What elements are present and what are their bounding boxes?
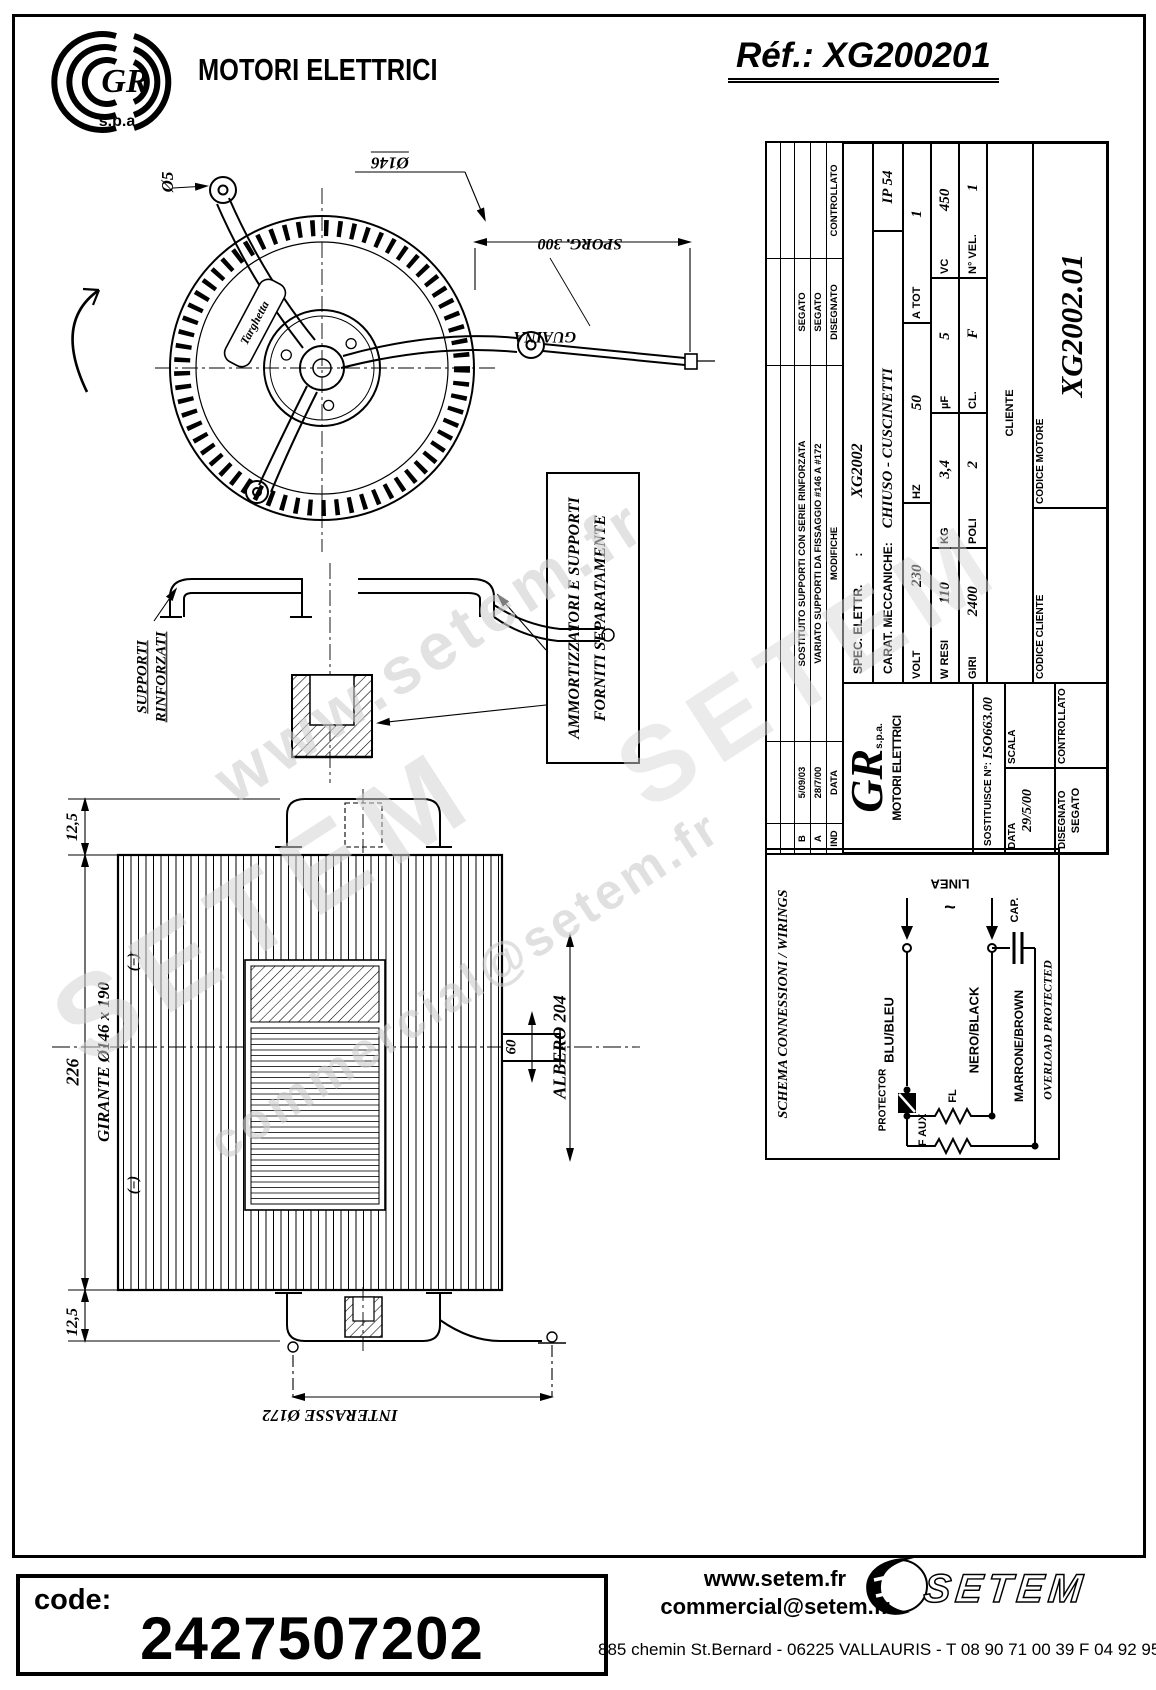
rev-cell	[767, 365, 781, 741]
rev-hdr-controllato: CONTROLLATO	[827, 143, 843, 258]
vc-value: 450	[937, 144, 954, 256]
rev-disegnato: SEGATO	[811, 258, 827, 365]
supporti-label-line2: RINFORZATI	[152, 632, 171, 723]
motor-core	[245, 960, 385, 1210]
supporti-label-line1: SUPPORTI	[133, 632, 152, 723]
codice-motore-label: CODICE MOTORE	[1034, 144, 1048, 507]
rev-hdr-modifiche: MODIFICHE	[827, 365, 843, 741]
title-block: B 5/09/03 SOSTITUITO SUPPORTI CON SERIE …	[765, 145, 1105, 855]
code-box: code: 2427507202	[16, 1574, 608, 1676]
kg-label: KG	[938, 525, 953, 548]
gr-block-spa: s.p.a.	[874, 723, 885, 749]
sostituisce-value: ISO663.00	[981, 697, 997, 759]
giri-label: GIRI	[966, 653, 981, 682]
note-line2: FORNITI SEPARATAMENTE	[588, 474, 614, 762]
hz-value: 50	[909, 324, 926, 481]
dim-dia146-label: Ø146	[371, 152, 409, 173]
blu-wire-label: BLU/BLEU	[882, 997, 897, 1063]
rev-controllato	[811, 143, 827, 258]
rubber-bushing-section	[292, 675, 372, 757]
sostituisce-cell: SOSTITUISCE N°: ISO663.00	[973, 683, 1005, 853]
hz-cell: HZ 50	[903, 323, 931, 503]
dim-eq-bottom: (=)	[126, 1176, 143, 1195]
controllato-cell: CONTROLLATO	[1055, 683, 1107, 768]
atot-value: 1	[909, 144, 926, 284]
rev-date: 5/09/03	[795, 741, 811, 823]
rev-modifiche: SOSTITUITO SUPPORTI CON SERIE RINFORZATA	[795, 365, 811, 741]
revision-row-a: A 28/7/00 VARIATO SUPPORTI DA FISSAGGIO …	[811, 143, 827, 853]
linea-label: LINEA	[931, 877, 970, 892]
ip-value: IP 54	[880, 144, 897, 230]
giri-cell: GIRI 2400	[959, 548, 987, 683]
volt-value: 230	[909, 504, 926, 647]
supporti-rinforzati-label: SUPPORTI RINFORZATI	[133, 632, 171, 723]
rev-cell	[767, 741, 781, 823]
kg-value: 3,4	[937, 414, 954, 525]
uf-cell: µF 5	[931, 278, 959, 413]
volt-label: VOLT	[910, 647, 925, 682]
rev-date: 28/7/00	[811, 741, 827, 823]
spec-elettr-row: SPEC. ELETTR. : XG2002	[843, 143, 873, 683]
carat-value: CHIUSO - CUSCINETTI	[880, 368, 897, 528]
dim-girante: GIRANTE Ø146 x 190	[94, 982, 114, 1142]
carat-row: CARAT. MECCANICHE: CHIUSO - CUSCINETTI	[873, 231, 903, 683]
hz-label: HZ	[910, 481, 925, 502]
nvel-cell: N° VEL. 1	[959, 143, 987, 278]
rev-cell	[767, 143, 781, 258]
wresi-value: 110	[937, 549, 954, 637]
codice-cliente-cell: CODICE CLIENTE	[1033, 508, 1107, 683]
uf-value: 5	[937, 279, 954, 393]
disegnato-label: DISEGNATO	[1056, 769, 1070, 852]
revision-row-empty1	[767, 143, 781, 853]
volt-cell: VOLT 230	[903, 503, 931, 683]
dim-interasse: INTERASSE Ø172	[262, 1405, 398, 1425]
cable-sheath	[543, 344, 715, 369]
rev-cell	[781, 143, 795, 258]
disegnato-cell: DISEGNATO SEGATO	[1055, 768, 1107, 853]
data-value: 29/5/00	[1020, 769, 1036, 852]
revision-row-b: B 5/09/03 SOSTITUITO SUPPORTI CON SERIE …	[795, 143, 811, 853]
data-cell: DATA 29/5/00	[1005, 768, 1055, 853]
overload-label: OVERLOAD PROTECTED	[1041, 960, 1056, 1100]
schematic-title: SCHEMA CONNESSIONI / WIRINGS	[776, 890, 792, 1119]
revision-row-empty2	[781, 143, 795, 853]
spec-label: SPEC. ELETTR.	[851, 585, 865, 674]
atot-cell: A TOT 1	[903, 143, 931, 323]
setem-logo: SETEM	[858, 1552, 1148, 1622]
dim-shaft-60: 60	[504, 1040, 521, 1055]
dim-albero: ALBERO 204	[550, 995, 571, 1099]
motor-side-view	[40, 785, 660, 1440]
note-line1: AMMORTIZZATORI E SUPPORTI	[562, 474, 588, 762]
kg-cell: KG 3,4	[931, 413, 959, 548]
wresi-label: W RESI	[938, 637, 953, 682]
wiring-schematic: SCHEMA CONNESSIONI / WIRINGS LINEA ~ BLU…	[765, 848, 1060, 1160]
cliente-label: CLIENTE	[1004, 389, 1016, 436]
cl-cell: CL. F	[959, 278, 987, 413]
dim-top-offset: 12,5	[64, 813, 82, 841]
separate-supply-note: AMMORTIZZATORI E SUPPORTI FORNITI SEPARA…	[546, 472, 640, 764]
separate-supply-note-wrap: AMMORTIZZATORI E SUPPORTI FORNITI SEPARA…	[546, 472, 640, 764]
wresi-cell: W RESI 110	[931, 548, 959, 683]
bottom-bracket	[275, 1287, 566, 1353]
top-bracket	[275, 789, 452, 853]
fl-winding-label: FL	[947, 1089, 959, 1102]
nvel-label: N° VEL.	[966, 231, 981, 277]
rotation-arrow	[73, 289, 99, 392]
codice-motore-cell: CODICE MOTORE XG2002.01	[1033, 143, 1107, 508]
reference-number: Réf.: XG200201	[728, 36, 999, 83]
dim-bottom-offset: 12,5	[64, 1308, 82, 1336]
atot-label: A TOT	[910, 284, 925, 322]
ip-cell: IP 54	[873, 143, 903, 231]
data-label: DATA	[1006, 769, 1020, 852]
nero-wire-label: NERO/BLACK	[967, 987, 982, 1074]
setem-logo-swirl	[866, 1558, 927, 1615]
carat-label: CARAT. MECCANICHE:	[881, 542, 895, 674]
poli-cell: POLI 2	[959, 413, 987, 548]
guaina-label: GUAINA	[514, 327, 576, 345]
spec-sep: :	[851, 553, 865, 557]
dim-total-height: 226	[63, 1059, 84, 1086]
rev-cell	[767, 258, 781, 365]
rev-disegnato: SEGATO	[795, 258, 811, 365]
revision-header-row: IND DATA MODIFICHE DISEGNATO CONTROLLATO	[827, 143, 843, 853]
cl-label: CL.	[966, 388, 981, 412]
scala-cell: SCALA	[1005, 683, 1055, 768]
nvel-value: 1	[965, 144, 982, 231]
giri-value: 2400	[965, 549, 982, 653]
dim-sporg-label: SPORG. 300	[538, 234, 622, 252]
spec-value: XG2002	[849, 443, 867, 497]
setem-logo-text: SETEM	[922, 1567, 1089, 1611]
rev-modifiche: VARIATO SUPPORTI DA FISSAGGIO #146 A #17…	[811, 365, 827, 741]
footer-address: 885 chemin St.Bernard - 06225 VALLAURIS …	[598, 1640, 1146, 1660]
drawing-sheet: GR s.p.a MOTORI ELETTRICI Réf.: XG200201	[0, 0, 1156, 1690]
sostituisce-label: SOSTITUISCE N°:	[982, 759, 996, 849]
disegnato-value: SEGATO	[1070, 769, 1082, 852]
brand-title: MOTORI ELETTRICI	[198, 52, 438, 88]
protector-label: PROTECTOR	[878, 1069, 889, 1132]
faux-winding-label: F AUX	[917, 1114, 929, 1147]
rev-hdr-disegnato: DISEGNATO	[827, 258, 843, 365]
uf-label: µF	[938, 393, 953, 412]
vc-label: VC	[938, 256, 953, 277]
gr-logo-letters: GR	[101, 63, 148, 101]
cl-value: F	[965, 279, 982, 388]
vc-cell: VC 450	[931, 143, 959, 278]
ac-symbol: ~	[944, 895, 956, 918]
controllato-label: CONTROLLATO	[1056, 684, 1070, 767]
rev-controllato	[795, 143, 811, 258]
rev-cell	[781, 741, 795, 823]
codice-cliente-label: CODICE CLIENTE	[1034, 509, 1048, 682]
code-value: 2427507202	[20, 1604, 604, 1673]
poli-value: 2	[965, 414, 982, 515]
cap-label: CAP.	[1009, 898, 1021, 923]
gr-block-logo-cell: GRs.p.a. MOTORI ELETTRICI	[843, 683, 973, 853]
title-block-inner: B 5/09/03 SOSTITUITO SUPPORTI CON SERIE …	[765, 141, 1109, 855]
rev-cell	[781, 365, 795, 741]
rev-cell	[781, 258, 795, 365]
gr-block-logo: GR	[841, 749, 892, 813]
gr-block-brand: MOTORI ELETTRICI	[890, 684, 904, 852]
codice-motore-value: XG2002.01	[1054, 144, 1090, 507]
dim-dia5-label: Ø5	[158, 172, 178, 193]
dim-eq-top: (=)	[126, 953, 143, 972]
scala-label: SCALA	[1006, 684, 1020, 767]
cliente-cell: CLIENTE	[987, 143, 1033, 683]
gr-logo-spa: s.p.a	[99, 113, 135, 131]
poli-label: POLI	[966, 515, 981, 547]
marrone-wire-label: MARRONE/BROWN	[1012, 990, 1026, 1102]
